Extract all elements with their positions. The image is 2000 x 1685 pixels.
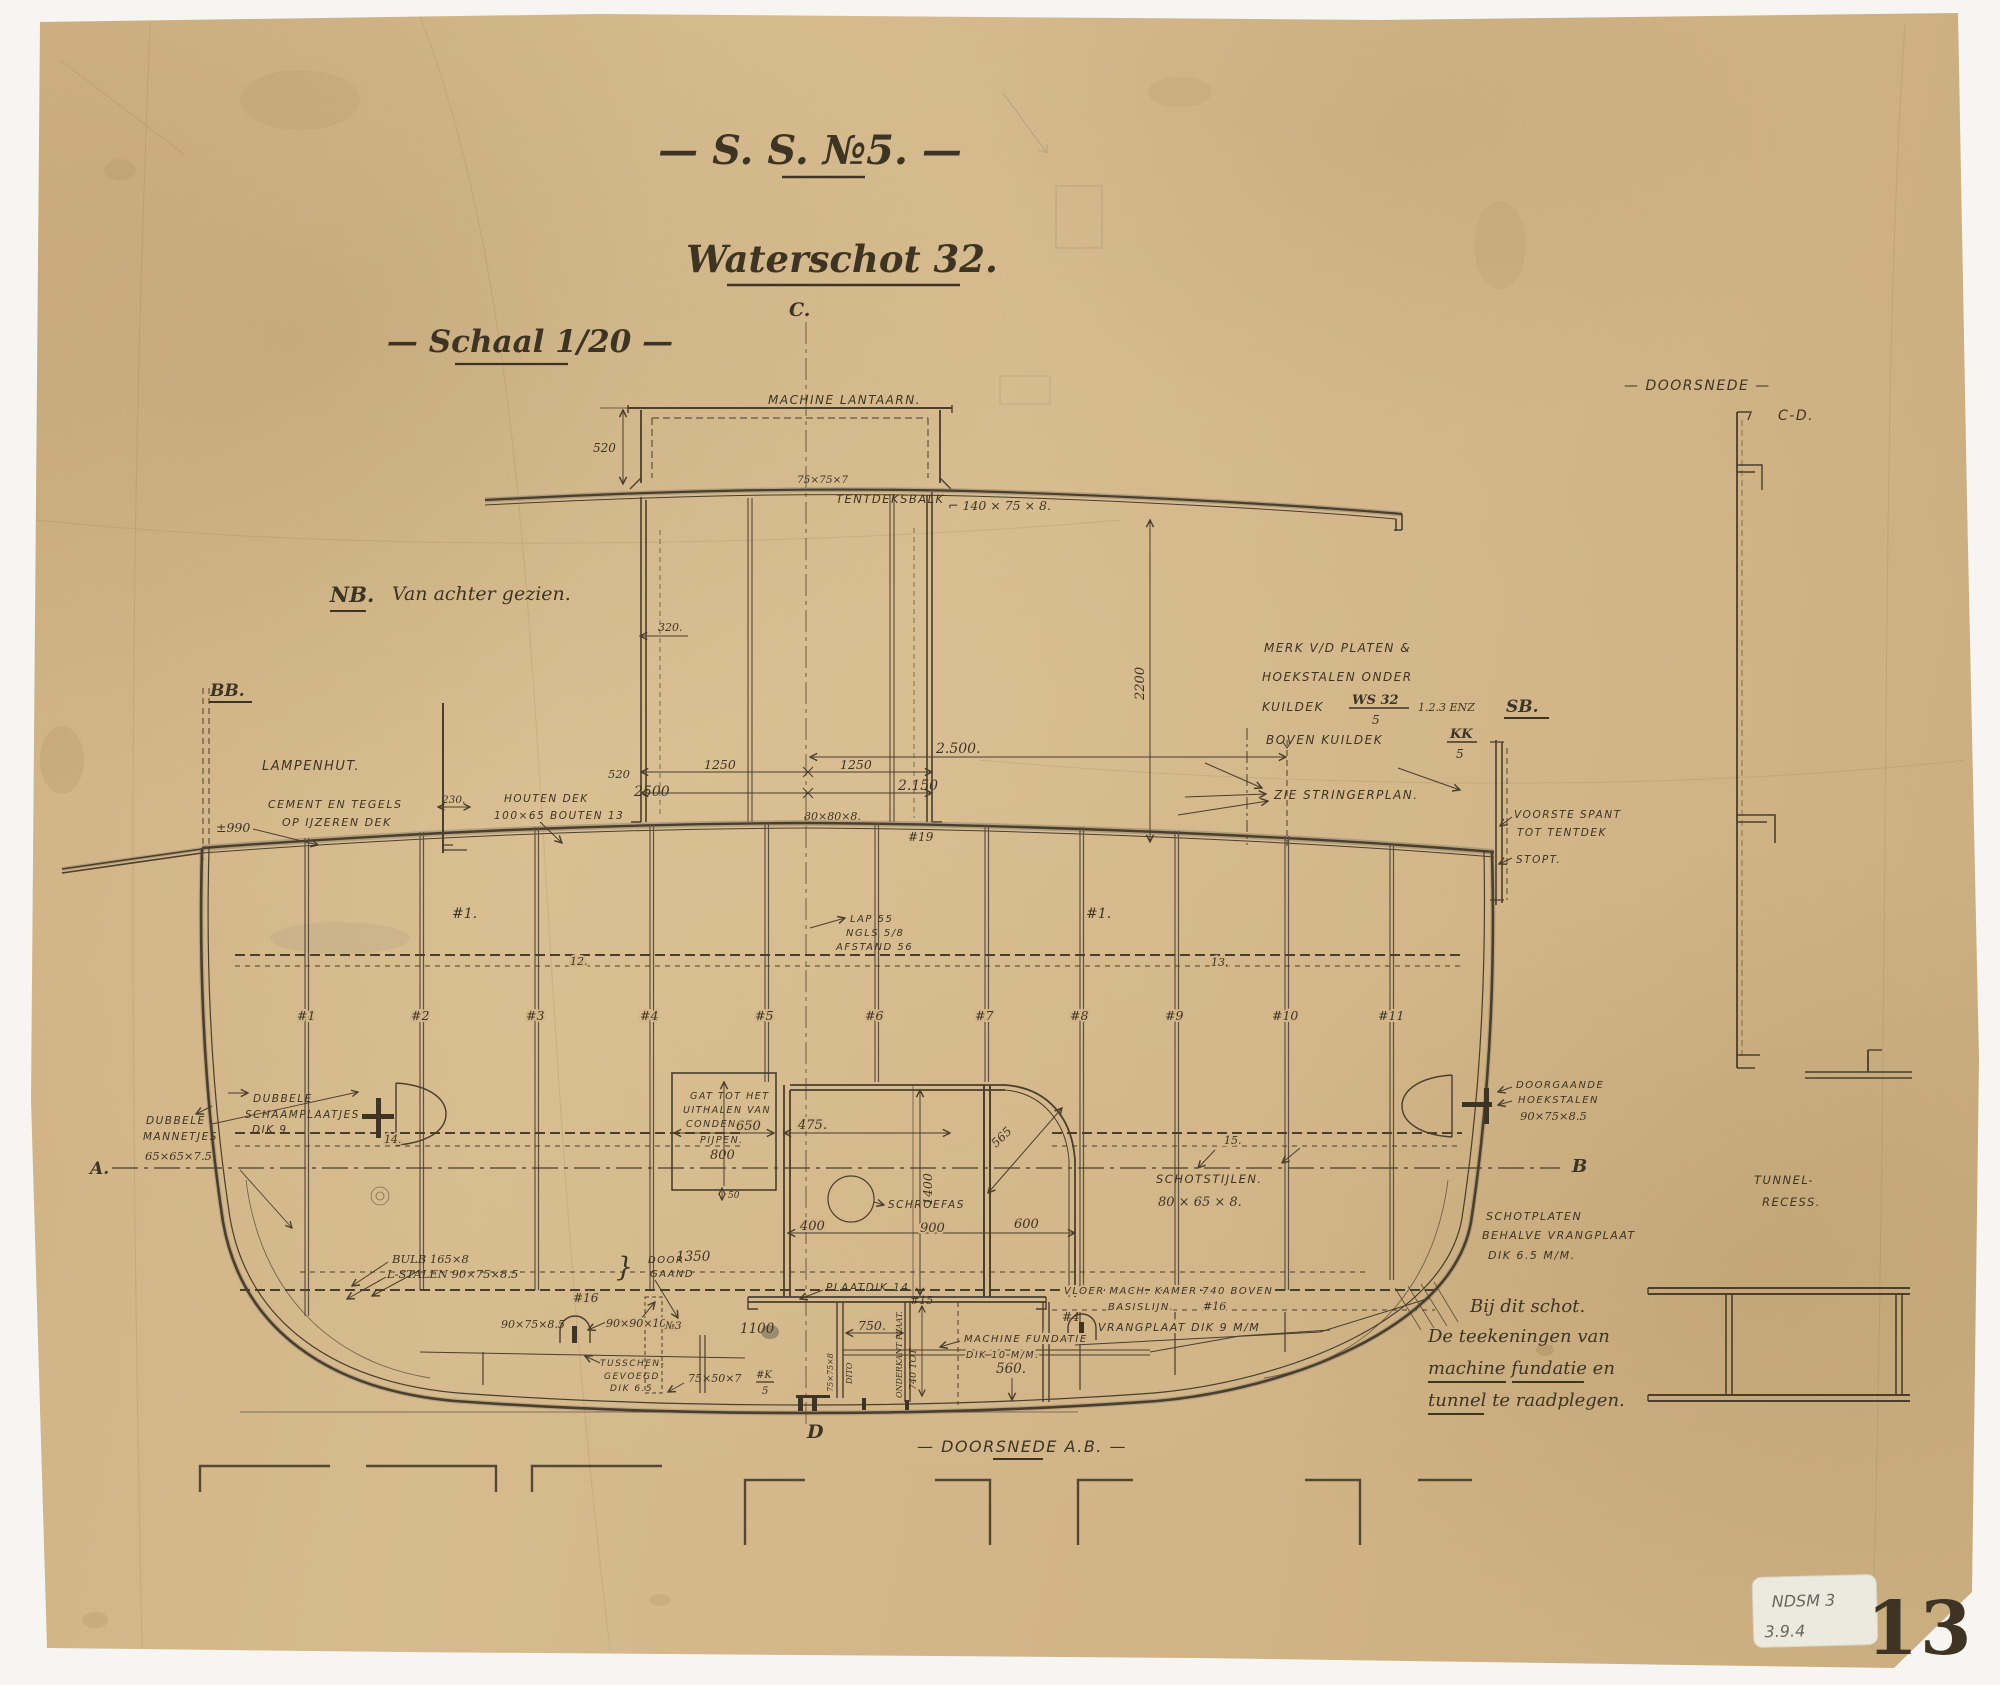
stringer-13: 13. — [1211, 956, 1229, 969]
gat-line4: PIJPEN. — [700, 1135, 744, 1146]
frame-4: #4 — [1062, 1310, 1080, 1324]
merk-ws-den: 5 — [1372, 713, 1380, 727]
label-angle-75x50x7: 75×50×7 — [688, 1372, 741, 1385]
tusschengevoegd-note: TUSSCHEN- GEVOEGD DIK 6.5 — [600, 1359, 665, 1394]
frame-15: #15 — [910, 1294, 933, 1307]
label-tentdeksbalk-size: ⌐ 140 × 75 × 8. — [948, 498, 1051, 513]
bulkhead-stiffeners — [305, 823, 1394, 1316]
tunnel-recess-label: TUNNEL- RECESS. — [1754, 1173, 1821, 1209]
man-line3: 65×65×7.5 — [145, 1149, 212, 1163]
man-line2: MANNETJES — [143, 1131, 218, 1143]
kuildek-deck-line — [62, 823, 1494, 873]
schaamplaatjes-note: DUBBELE SCHAAMPLAATJES DIK 9 — [245, 1093, 360, 1136]
frame-16-right: #16 — [1203, 1300, 1226, 1313]
schotplaten-note: SCHOTPLATEN BEHALVE VRANGPLAAT DIK 6.5 M… — [1482, 1210, 1636, 1262]
section-cd-detail — [1737, 412, 1775, 1068]
nb-prefix: NB. — [329, 582, 374, 607]
merk-kk-den: 5 — [1456, 747, 1464, 761]
frame-number-9: #9 — [1165, 1008, 1183, 1023]
merk-line3: KUILDEK — [1262, 700, 1324, 714]
mannetjes-note: DUBBELE MANNETJES 65×65×7.5 — [143, 1115, 218, 1163]
section-mark-b: B — [1571, 1156, 1587, 1177]
label-machine-lantaarn: MACHINE LANTAARN. — [768, 393, 921, 407]
vert-label-dito: DITO — [845, 1362, 854, 1385]
side-marks: BB. SB. — [209, 681, 1549, 718]
frame-number-8: #8 — [1070, 1008, 1088, 1023]
note-line4: tunnel te raadplegen. — [1428, 1390, 1625, 1411]
label-angle-75x75x7: 75×75×7 — [797, 474, 848, 486]
doorsnede-cd-label: — DOORSNEDE — — [1624, 378, 1771, 394]
label-cement-2: OP IJZEREN DEK — [282, 816, 392, 829]
merk-line1: MERK V/D PLATEN & — [1264, 641, 1411, 655]
frame-number-11: #11 — [1378, 1008, 1404, 1023]
dimension-lines-casing — [253, 408, 1291, 848]
label-vrangplaat: VRANGPLAAT DIK 9 M/M — [1098, 1321, 1260, 1334]
frame-number-2: #2 — [411, 1008, 429, 1023]
doorgaande-line2: HOEKSTALEN — [1518, 1095, 1599, 1106]
merk-enz: 1.2.3 ENZ — [1418, 701, 1475, 714]
section-mark-d: D — [806, 1421, 824, 1443]
frame-number-10: #10 — [1272, 1008, 1298, 1023]
paper-creases — [36, 16, 1966, 1650]
doorsnede-ab-title: — DOORSNEDE A.B. — — [917, 1437, 1127, 1459]
plate-mark-1-right: #1. — [1086, 906, 1111, 922]
dim-1250-a: 1250 — [704, 757, 736, 772]
sticker-archive-number: 3.9.4 — [1764, 1621, 1805, 1641]
label-lampenhut: LAMPENHUT. — [262, 759, 360, 774]
dim-400: 400 — [799, 1219, 825, 1234]
label-houten-dek-2: 100×65 BOUTEN 13 — [494, 810, 624, 822]
dim-560: 560. — [996, 1361, 1026, 1377]
starboard-side-mark: SB. — [1506, 697, 1539, 717]
bulb-note: BULB 165×8 L-STALEN 90×75×8.5 } DOOR- GA… — [386, 1252, 694, 1283]
doorsnede-cd-title: — DOORSNEDE — C-D. — [1624, 378, 1814, 424]
archive-sticker: NDSM 3 3.9.4 — [1752, 1574, 1878, 1647]
nb-text: Van achter gezien. — [392, 583, 571, 605]
schotplaten-line1: SCHOTPLATEN — [1486, 1210, 1582, 1223]
doorgaande-line3: 90×75×8.5 — [1520, 1109, 1587, 1123]
stijlen-line1: SCHOTSTIJLEN. — [1156, 1172, 1263, 1186]
label-houten-dek-1: HOUTEN DEK — [504, 793, 589, 805]
frame-16-left: #16 — [573, 1291, 599, 1305]
tunnel-line1: TUNNEL- — [1754, 1173, 1814, 1187]
label-stopt: STOPT. — [1516, 854, 1561, 866]
merk-ws-num: WS 32 — [1352, 693, 1399, 708]
k-mark-num: #K — [756, 1370, 772, 1381]
dim-2150: 2.150 — [897, 778, 938, 794]
mf-line2: DIK 10 M/M. — [966, 1350, 1040, 1361]
merk-line2: HOEKSTALEN ONDER — [1262, 670, 1413, 684]
dim-2500-left: 2500 — [633, 784, 670, 800]
handwritten-note: Bij dit schot. De teekeningen van machin… — [1427, 1296, 1625, 1414]
dim-320: 320. — [658, 621, 683, 634]
section-mark-c: C. — [789, 299, 810, 321]
label-vloer-mach-kamer: VLOER MACH. KAMER 740 BOVEN — [1064, 1286, 1273, 1297]
right-bracket-details — [1402, 1075, 1512, 1137]
schotplaten-line2: BEHALVE VRANGPLAAT — [1482, 1229, 1636, 1242]
title-block: — S. S. №5. — Waterschot 32. — Schaal 1/… — [387, 127, 998, 364]
mf-line1: MACHINE FUNDATIE — [964, 1334, 1088, 1345]
label-voorste-spant-2: TOT TENTDEK — [1517, 827, 1607, 839]
schaam-line1: DUBBELE — [253, 1093, 313, 1105]
dim-230: 230. — [441, 794, 465, 806]
label-angle-90x75x85: 90×75×8.5 — [501, 1318, 565, 1331]
dim-2200: 2200 — [1133, 667, 1148, 701]
merk-line4: BOVEN KUILDEK — [1266, 733, 1383, 747]
dim-990: ±990 — [216, 820, 250, 835]
machine-lantern — [628, 405, 952, 489]
doorgaande-note: DOORGAANDE HOEKSTALEN 90×75×8.5 — [1516, 1080, 1604, 1123]
label-no3: №3 — [664, 1320, 682, 1332]
stijlen-line2: 80 × 65 × 8. — [1158, 1195, 1242, 1210]
border-scale-marks — [200, 1466, 1472, 1545]
frame-19: #19 — [908, 830, 934, 844]
machine-fundatie-note: MACHINE FUNDATIE DIK 10 M/M. — [964, 1334, 1088, 1361]
dim-1250-b: 1250 — [840, 757, 872, 772]
note-line2: De teekeningen van — [1427, 1326, 1610, 1347]
man-line1: DUBBELE — [146, 1115, 206, 1127]
dim-520-casing: 520 — [608, 767, 630, 781]
tus-line1: TUSSCHEN- — [600, 1359, 665, 1369]
left-bracket-details — [196, 1083, 446, 1228]
frame-number-4: #4 — [640, 1008, 658, 1023]
sheet-number-stencil: 13 — [1867, 1586, 1974, 1672]
label-angle-90x90x10: 90×90×10 — [606, 1317, 666, 1330]
dim-750: 750. — [858, 1318, 886, 1333]
dim-900: 900 — [920, 1221, 945, 1236]
scanned-blueprint-page: — S. S. №5. — Waterschot 32. — Schaal 1/… — [0, 0, 2000, 1685]
bulb-brace: } — [616, 1252, 633, 1283]
dim-565: 565 — [988, 1124, 1014, 1150]
dim-2500-right: 2.500. — [935, 741, 981, 757]
label-plaatdik-14: PLAATDIK 14. — [826, 1282, 914, 1294]
frame-number-3: #3 — [526, 1008, 544, 1023]
drawing-title: — S. S. №5. — — [658, 127, 962, 174]
label-tentdeksbalk: TENTDEKSBALK — [836, 492, 945, 506]
dim-1350: 1350 — [676, 1249, 711, 1265]
drawing-subtitle: Waterschot 32. — [686, 237, 998, 281]
lap-line1: LAP 55 — [850, 914, 893, 925]
frame-number-6: #6 — [865, 1008, 883, 1023]
lap-line2: NGLS 5/8 — [846, 928, 904, 939]
tunnel-line2: RECESS. — [1762, 1195, 1821, 1209]
frame-number-5: #5 — [755, 1008, 773, 1023]
vert-label-740-tot: 740 TOT — [908, 1348, 919, 1390]
schaam-line3: DIK 9 — [252, 1124, 288, 1136]
frame-numbers: #1 #2 #3 #4 #5 #6 #7 #8 #9 #10 #11 — [297, 1008, 1404, 1023]
angle-75x50x7-note: 75×50×7 #K 5 — [688, 1370, 774, 1397]
label-angle-80x80x8: 80×80×8. — [804, 810, 861, 823]
dim-1100: 1100 — [740, 1321, 775, 1337]
frame-number-1: #1 — [297, 1008, 315, 1023]
label-cement-1: CEMENT EN TEGELS — [268, 798, 402, 811]
tunnel-recess-section — [1648, 1050, 1912, 1401]
port-side-mark: BB. — [209, 681, 245, 701]
stringer-14: 14. — [384, 1133, 402, 1146]
label-voorste-spant-1: VOORSTE SPANT — [1514, 809, 1622, 821]
dim-475: 475. — [797, 1118, 827, 1133]
pencil-marks — [1000, 93, 1102, 404]
dim-600: 600 — [1014, 1217, 1039, 1232]
scale-label: — Schaal 1/20 — — [387, 324, 673, 360]
merk-kk-num: KK — [1449, 727, 1473, 742]
k-mark-den: 5 — [762, 1386, 768, 1397]
lap-note: LAP 55 NGLS 5/8 AFSTAND 56 — [835, 914, 913, 953]
schaam-line2: SCHAAMPLAATJES — [245, 1109, 360, 1121]
vert-label-75x75x8: 75×75×8 — [826, 1353, 835, 1392]
doorsnede-ab-label: — DOORSNEDE A.B. — — [917, 1437, 1127, 1456]
sticker-archive-code: NDSM 3 — [1771, 1590, 1835, 1611]
section-mark-a: A. — [88, 1159, 109, 1179]
lap-line3: AFSTAND 56 — [835, 942, 913, 953]
tus-line3: DIK 6.5 — [610, 1384, 653, 1394]
frame-number-7: #7 — [975, 1008, 993, 1023]
bulb-line1: BULB 165×8 — [391, 1252, 469, 1266]
gat-line2: UITHALEN VAN — [683, 1105, 771, 1116]
schotstijlen-note: SCHOTSTIJLEN. 80 × 65 × 8. — [1156, 1172, 1263, 1210]
bulb-line2: L-STALEN 90×75×8.5 — [386, 1267, 518, 1281]
note-line1: Bij dit schot. — [1469, 1296, 1585, 1317]
label-zie-stringerplan: ZIE STRINGERPLAN. — [1273, 788, 1419, 802]
schotplaten-line3: DIK 6.5 M/M. — [1488, 1249, 1576, 1262]
merk-note: MERK V/D PLATEN & HOEKSTALEN ONDER KUILD… — [1262, 641, 1477, 761]
blueprint-drawing: — S. S. №5. — Waterschot 32. — Schaal 1/… — [0, 0, 2000, 1685]
dim-650: 650 — [736, 1119, 761, 1134]
tus-line2: GEVOEGD — [604, 1372, 660, 1382]
dim-1400: 1400 — [920, 1173, 935, 1205]
stringer-15: 15. — [1224, 1134, 1242, 1147]
doorgaande-line1: DOORGAANDE — [1516, 1080, 1604, 1091]
gat-line1: GAT TOT HET — [690, 1091, 770, 1102]
note-line3: machine fundatie en — [1428, 1358, 1615, 1379]
plate-mark-1-left: #1. — [452, 906, 477, 922]
nb-note: NB. Van achter gezien. — [329, 582, 571, 611]
vert-label-onderkant-plaat: ONDERKANT PLAAT. — [895, 1311, 904, 1398]
doorgaand-line2: GAAND — [650, 1269, 694, 1280]
dim-520-lantern: 520 — [593, 441, 616, 455]
gat-dim-800: 800 — [710, 1148, 735, 1163]
dim-50: 50 — [728, 1191, 740, 1201]
cd-label: C-D. — [1778, 408, 1814, 424]
label-basislijn: BASISLIJN. — [1108, 1302, 1174, 1313]
stringer-12: 12. — [570, 955, 588, 968]
